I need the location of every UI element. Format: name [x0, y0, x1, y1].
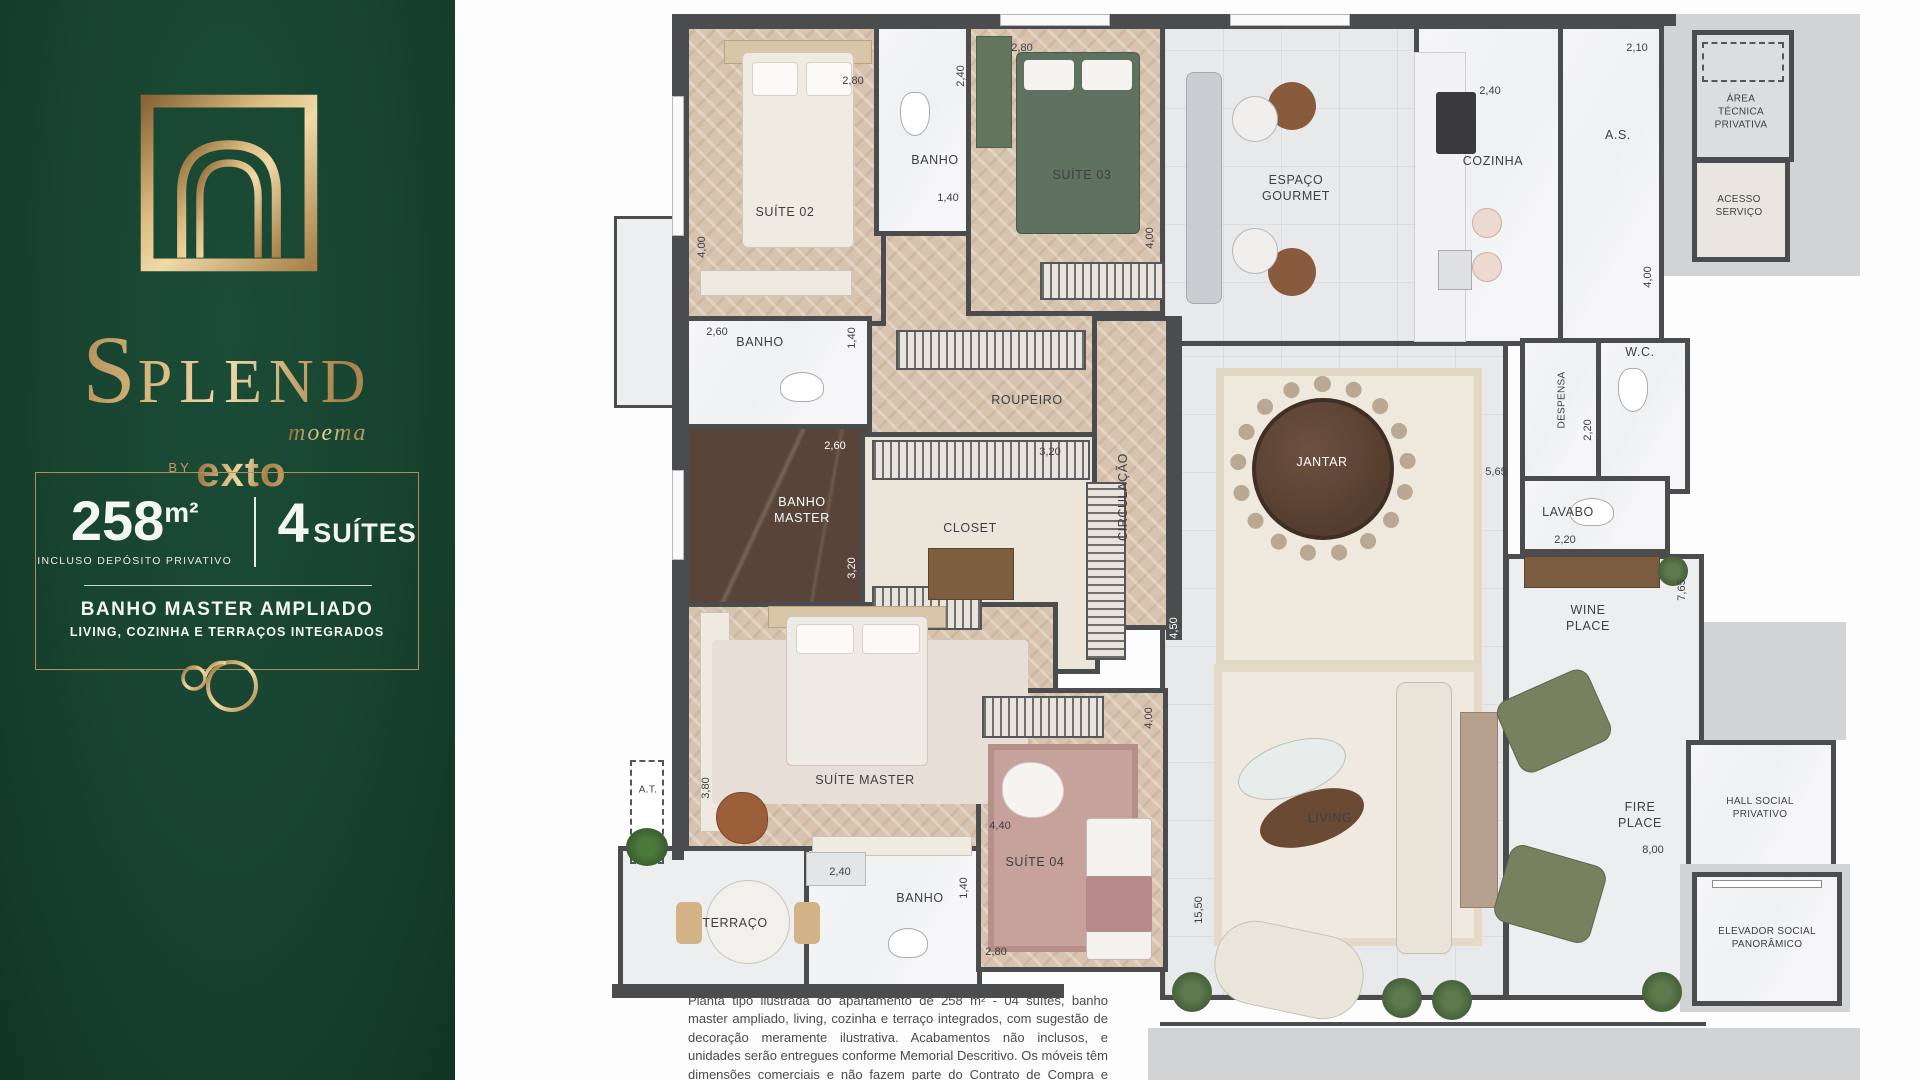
pillow [862, 624, 920, 654]
stool [1472, 208, 1502, 238]
room-label-hall-social: HALL SOCIAL PRIVATIVO [1726, 795, 1793, 821]
plant [1172, 972, 1212, 1012]
round-table [1232, 228, 1278, 274]
cooktop [1436, 92, 1476, 154]
dim-label: 2,40 [955, 65, 967, 86]
dim-label: 1,40 [937, 192, 958, 204]
plant [1642, 972, 1682, 1012]
room-label-living: LIVING [1308, 810, 1353, 826]
area-tecnica-dashed-box [1702, 42, 1784, 82]
area-spec: 258m² INCLUSO DEPÓSITO PRIVATIVO [37, 493, 254, 567]
pillow [1024, 60, 1074, 90]
balcony-rail [1160, 1022, 1706, 1026]
dim-label: 2,20 [1582, 419, 1594, 440]
feature-subtitle: LIVING, COZINHA E TERRAÇOS INTEGRADOS [36, 625, 418, 639]
wall [1166, 316, 1182, 640]
room-label-lavabo: LAVABO [1542, 504, 1594, 520]
terrace-chair [676, 902, 702, 944]
roupeiro-rack [896, 330, 1086, 370]
fireplace-console [1460, 712, 1498, 908]
divider [84, 585, 372, 586]
room-label-despensa: DESPENSA [1556, 372, 1569, 429]
dim-label: 5,65 [1485, 466, 1506, 478]
dim-label: 15,50 [1193, 896, 1205, 924]
room-label-wc: W.C. [1625, 344, 1654, 360]
room-area-servico [1558, 24, 1664, 346]
brochure-page: SPLEND moema BY exto 258m² INCLUSO DEPÓS… [0, 0, 1920, 1080]
dim-label: 3,20 [846, 557, 858, 578]
plant [1382, 978, 1422, 1018]
dim-label: 4,00 [696, 236, 708, 257]
wine-shelf [1524, 556, 1660, 588]
window [1000, 14, 1110, 26]
room-label-closet: CLOSET [943, 520, 997, 536]
suite-03-cabinet [976, 36, 1012, 148]
dim-label: 2,10 [1626, 42, 1647, 54]
plant [1432, 980, 1472, 1020]
suites-value: 4 [278, 491, 309, 554]
room-label-elevador: ELEVADOR SOCIAL PANORÂMICO [1718, 925, 1816, 951]
plant [626, 828, 668, 866]
suite-03-wardrobe [1040, 262, 1164, 300]
gourmet-sofa [1186, 72, 1222, 304]
room-label-at: A.T. [639, 784, 657, 797]
window [1230, 14, 1350, 26]
room-label-suite-04: SUÍTE 04 [1006, 854, 1065, 870]
room-label-jantar: JANTAR [1296, 454, 1347, 470]
dim-label: 8,00 [1642, 844, 1663, 856]
suites-spec: 4 SUÍTES [256, 493, 417, 551]
toilet [1618, 368, 1648, 412]
stool [1472, 252, 1502, 282]
room-label-roupeiro: ROUPEIRO [991, 392, 1062, 408]
area-note: INCLUSO DEPÓSITO PRIVATIVO [37, 555, 232, 567]
dim-label: 4,00 [1143, 707, 1155, 728]
dim-label: 2,80 [1011, 42, 1032, 54]
suites-label: SUÍTES [313, 518, 417, 548]
terrace-chair [794, 902, 820, 944]
round-table [1232, 96, 1278, 142]
armchair [716, 792, 768, 844]
dim-label: 2,40 [1479, 85, 1500, 97]
room-label-circulacao: CIRCULAÇÃO [1115, 453, 1131, 541]
room-label-area-tecnica: ÁREA TÉCNICA PRIVATIVA [1715, 93, 1768, 132]
room-label-cozinha: COZINHA [1463, 153, 1523, 169]
window [672, 96, 684, 236]
room-label-as: A.S. [1605, 127, 1631, 143]
area-value: 258 [71, 489, 164, 552]
dim-label: 1,40 [846, 327, 858, 348]
pillow [796, 624, 854, 654]
toilet [900, 92, 930, 136]
brand-panel: SPLEND moema BY exto 258m² INCLUSO DEPÓS… [0, 0, 455, 1080]
pillow [1082, 60, 1132, 90]
room-label-acesso-servico: ACESSO SERVIÇO [1716, 193, 1763, 219]
area-unit: m² [164, 497, 198, 528]
suite-02-dresser [700, 270, 852, 296]
dim-label: 2,80 [985, 946, 1006, 958]
closet-island [928, 548, 1014, 600]
brand-name: SPLEND [0, 322, 455, 418]
dim-label: 2,80 [842, 75, 863, 87]
room-label-banho-suite-02: BANHO [911, 152, 958, 168]
dim-label: 4,00 [1144, 227, 1156, 248]
room-label-suite-master: SUÍTE MASTER [815, 772, 915, 788]
spec-box: 258m² INCLUSO DEPÓSITO PRIVATIVO 4 SUÍTE… [35, 472, 419, 670]
exterior-zone [1148, 1028, 1860, 1080]
suite-04-wardrobe [982, 696, 1104, 738]
exterior-zone [1686, 622, 1846, 740]
toilet [780, 372, 824, 402]
room-label-suite-02: SUÍTE 02 [756, 204, 815, 220]
feature-title: BANHO MASTER AMPLIADO [36, 599, 418, 621]
room-label-suite-03: SUÍTE 03 [1053, 167, 1112, 183]
arch-emblem-icon [138, 92, 320, 274]
room-label-espaco-gourmet: ESPAÇO GOURMET [1262, 172, 1330, 205]
dim-label: 2,20 [1554, 534, 1575, 546]
elevator-door [1712, 880, 1822, 888]
dim-label: 4,00 [1642, 266, 1654, 287]
room-banho-suite-02 [874, 24, 978, 236]
room-label-fire-place: FIRE PLACE [1618, 799, 1662, 832]
suite-04-blanket [1086, 876, 1152, 932]
sink [1438, 250, 1472, 290]
dim-label: 2,60 [706, 326, 727, 338]
dim-label: 1,40 [958, 877, 970, 898]
room-label-banho-master: BANHO MASTER [774, 494, 830, 527]
dim-label: 2,60 [824, 440, 845, 452]
dim-label: 3,20 [1039, 446, 1060, 458]
room-label-wine-place: WINE PLACE [1566, 602, 1610, 635]
dim-label: 2,40 [829, 866, 850, 878]
room-label-terraco: TERRAÇO [702, 915, 767, 931]
kids-play-mat [1002, 762, 1064, 818]
room-wc [1596, 338, 1690, 494]
wall [676, 14, 1676, 26]
disclaimer-text: Planta tipo ilustrada do apartamento de … [688, 992, 1108, 1080]
dim-label: 3,80 [700, 777, 712, 798]
brand-location: moema [288, 420, 367, 447]
dim-label: 4,40 [989, 820, 1010, 832]
pillow [752, 62, 798, 96]
toilet [888, 928, 928, 958]
spec-top-row: 258m² INCLUSO DEPÓSITO PRIVATIVO 4 SUÍTE… [36, 493, 418, 567]
living-sofa [1396, 682, 1452, 954]
gold-swirl-icon [160, 652, 280, 724]
dim-label: 4,50 [1168, 617, 1180, 638]
room-label-banho-suite-04: BANHO [896, 890, 943, 906]
window [672, 470, 684, 560]
room-label-banho-social: BANHO [736, 334, 783, 350]
dim-label: 7,65 [1676, 579, 1688, 600]
